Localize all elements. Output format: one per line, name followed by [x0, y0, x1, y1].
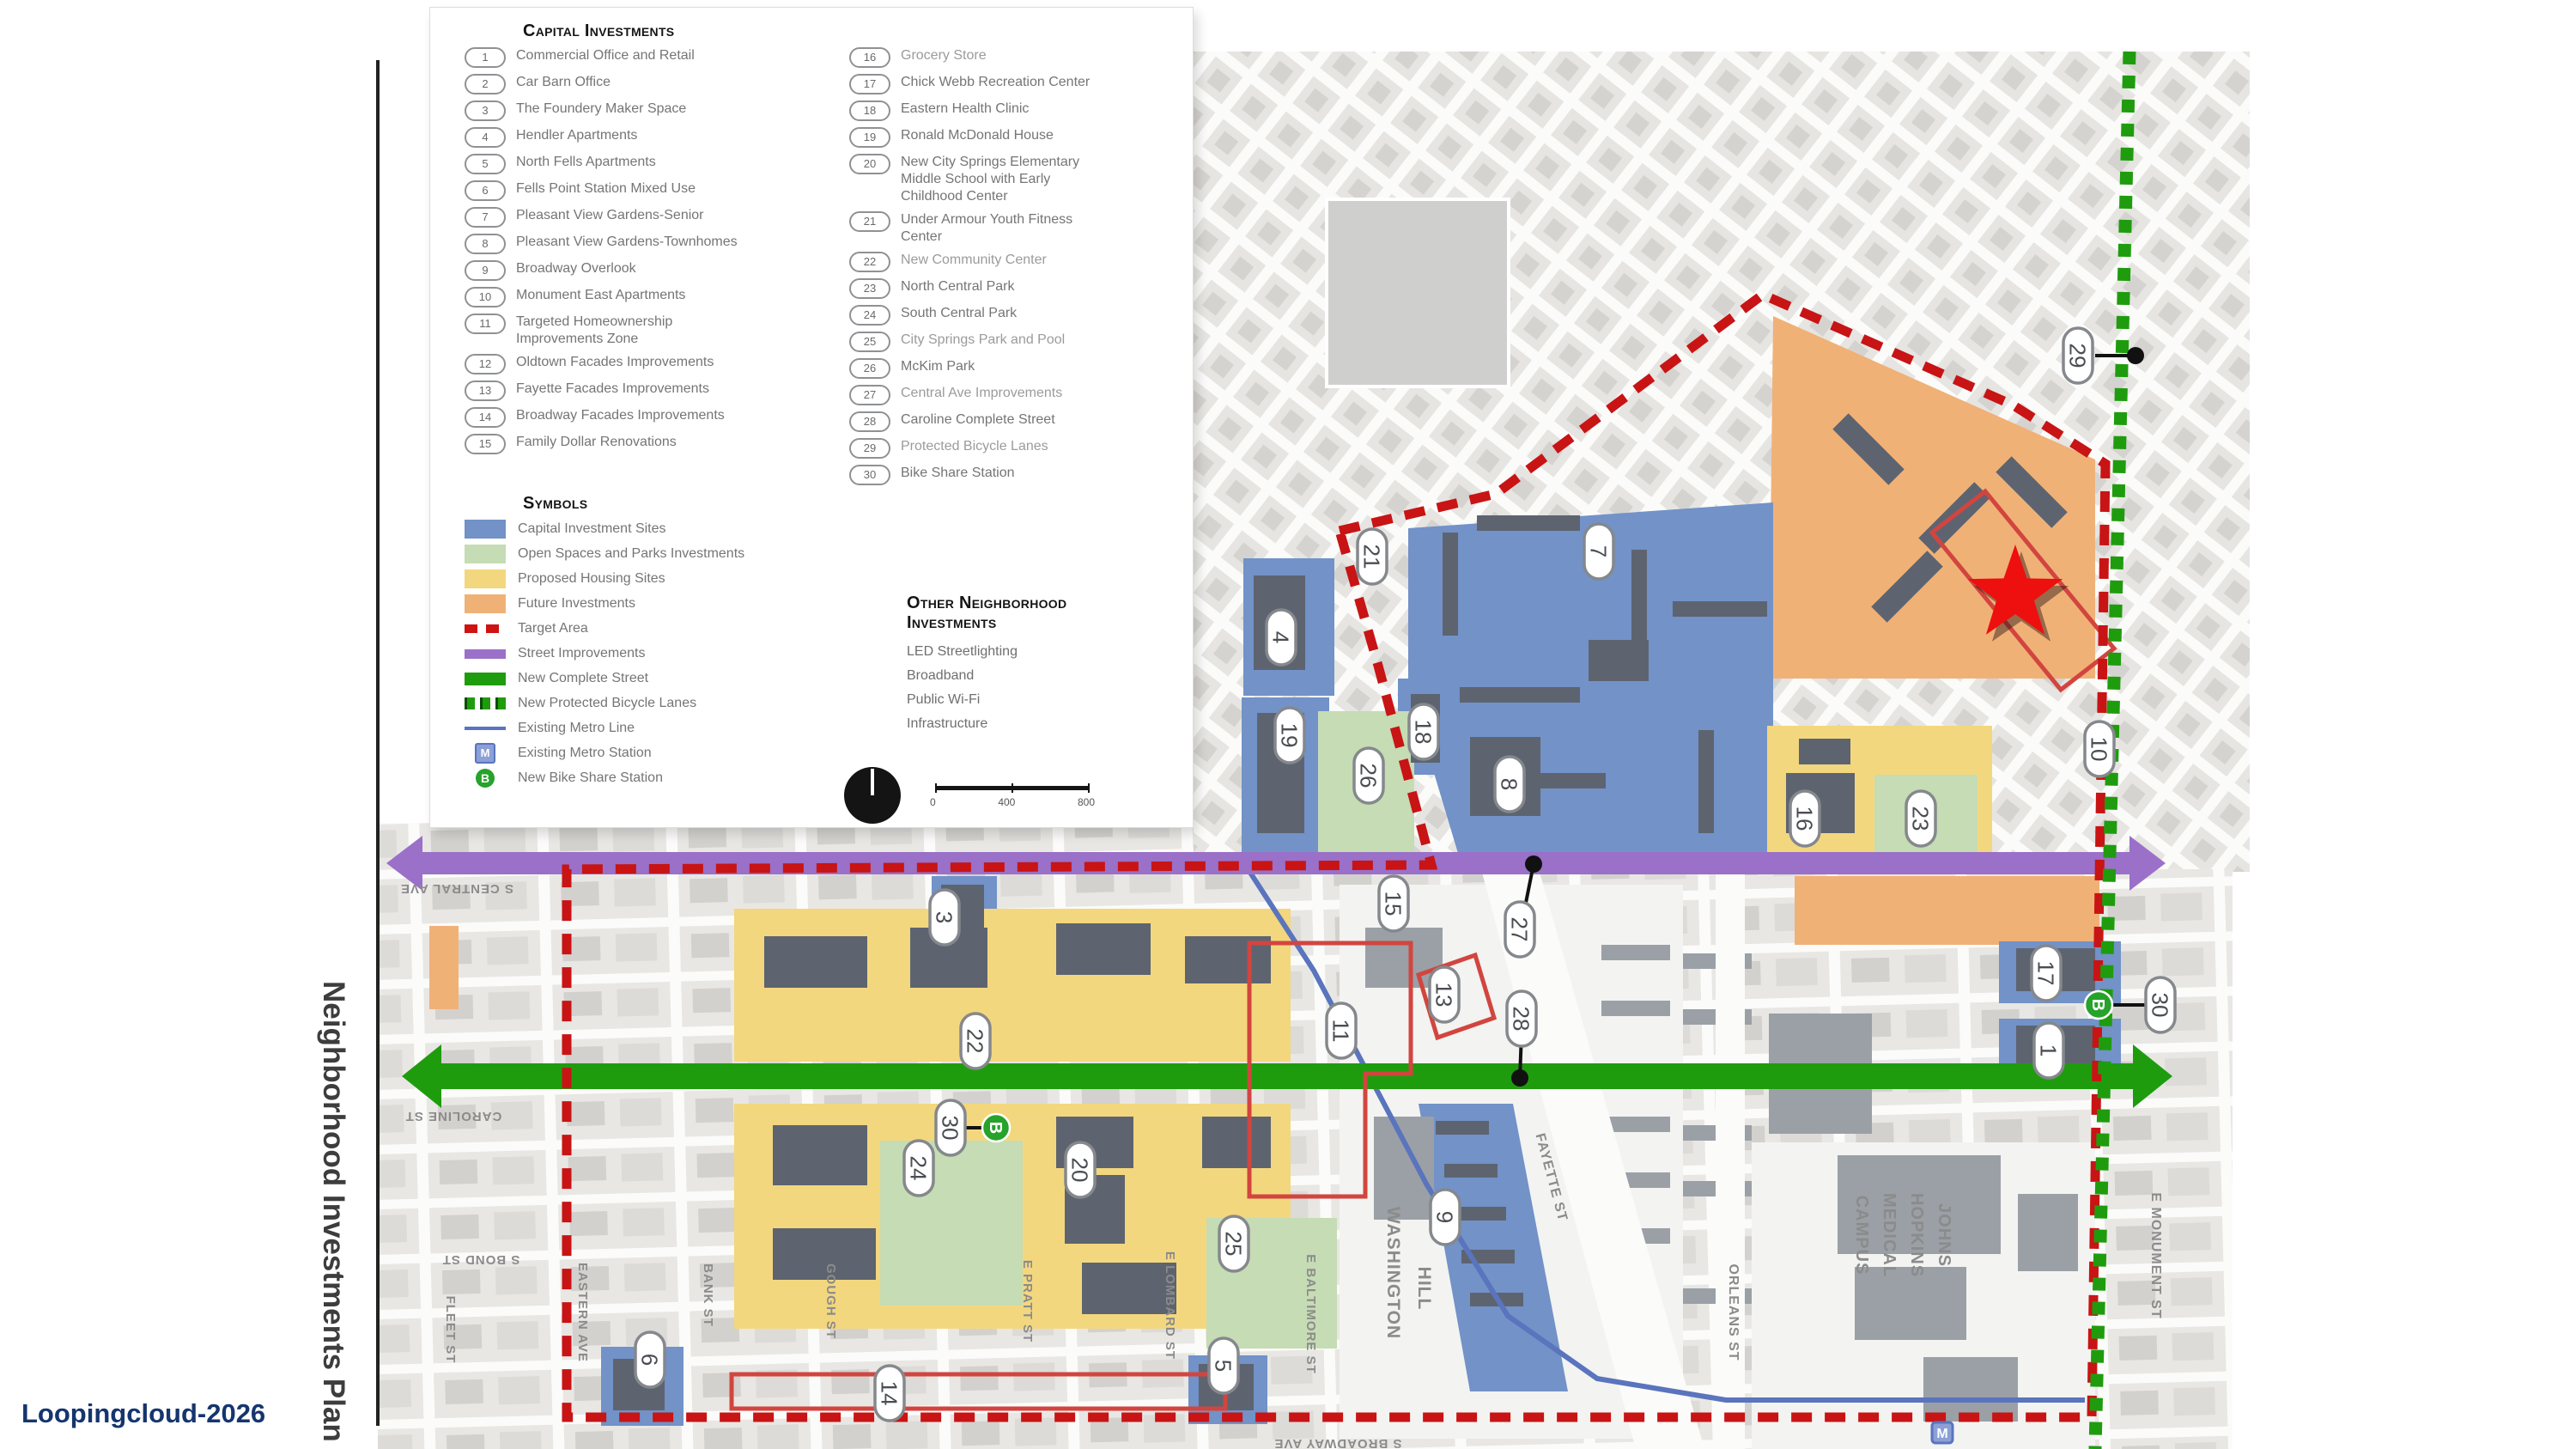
legend-item-27: 27Central Ave Improvements [849, 385, 1158, 405]
symbol-yellow: Proposed Housing Sites [465, 569, 842, 588]
future-investments-area [429, 926, 459, 1009]
metroline-swatch-icon [465, 727, 506, 730]
metro-station-marker: M [1932, 1422, 1953, 1443]
street-label: GOUGH ST [823, 1263, 838, 1339]
legend-item-number: 23 [849, 278, 890, 299]
legend-item-number: 3 [465, 100, 506, 121]
svg-text:M: M [1936, 1427, 1947, 1441]
map-badge-30: 30 [2146, 977, 2175, 1032]
legend-item-label: Oldtown Facades Improvements [516, 354, 714, 371]
svg-text:22: 22 [963, 1029, 988, 1054]
legend-item-label: Caroline Complete Street [901, 411, 1055, 429]
north-arrow-icon [844, 767, 901, 824]
legend-item-number: 16 [849, 47, 890, 68]
legend-item-number: 26 [849, 358, 890, 379]
legend-item-number: 25 [849, 332, 890, 352]
legend-item-25: 25City Springs Park and Pool [849, 332, 1158, 352]
green-swatch-icon [465, 545, 506, 563]
legend-item-number: 12 [465, 354, 506, 374]
other-investment-item: Infrastructure [907, 712, 1182, 736]
svg-text:5: 5 [1211, 1360, 1236, 1372]
symbol-label: Capital Investment Sites [518, 521, 666, 538]
svg-text:14: 14 [877, 1381, 902, 1406]
legend-item-number: 29 [849, 438, 890, 459]
map-badge-26: 26 [1354, 748, 1383, 803]
legend-item-26: 26McKim Park [849, 358, 1158, 379]
legend-item-label: Fayette Facades Improvements [516, 381, 709, 398]
legend-item-17: 17Chick Webb Recreation Center [849, 74, 1158, 94]
map-badge-15: 15 [1379, 876, 1408, 931]
map-badge-13: 13 [1430, 967, 1459, 1022]
symbol-label: Open Spaces and Parks Investments [518, 545, 744, 563]
legend-item-number: 22 [849, 252, 890, 272]
legend-item-4: 4Hendler Apartments [465, 127, 808, 148]
legend-item-number: 13 [465, 381, 506, 401]
legend-col-2: 16Grocery Store17Chick Webb Recreation C… [849, 47, 1158, 491]
svg-text:8: 8 [1497, 778, 1522, 790]
legend-item-24: 24South Central Park [849, 305, 1158, 326]
svg-text:30: 30 [938, 1116, 963, 1141]
street-label: E LOMBARD ST [1163, 1251, 1177, 1360]
legend-item-label: South Central Park [901, 305, 1017, 322]
legend-item-number: 1 [465, 47, 506, 68]
symbol-label: Target Area [518, 620, 588, 637]
street-label: EASTERN AVE [575, 1263, 590, 1362]
street-swatch-icon [465, 649, 506, 659]
legend-item-number: 5 [465, 154, 506, 174]
map-canvas: S CENTRAL AVECAROLINE STS BOND STFLEET S… [0, 0, 2576, 1449]
symbol-label: New Complete Street [518, 670, 648, 687]
map-badge-7: 7 [1584, 524, 1613, 579]
svg-text:20: 20 [1067, 1158, 1093, 1183]
svg-text:3: 3 [932, 911, 957, 923]
symbol-metroline: Existing Metro Line [465, 719, 842, 738]
legend-item-number: 17 [849, 74, 890, 94]
scale-labels: 0400800 [930, 796, 1095, 808]
legend-item-10: 10Monument East Apartments [465, 287, 808, 307]
legend-item-number: 9 [465, 260, 506, 281]
legend-item-label: Hendler Apartments [516, 127, 637, 144]
svg-text:23: 23 [1908, 807, 1934, 831]
map-badge-28: 28 [1507, 991, 1536, 1046]
street-label: JOHNS [1935, 1203, 1953, 1267]
symbol-label: Existing Metro Line [518, 720, 635, 737]
other-investments-title: Other Neighborhood Investments [907, 594, 1066, 633]
legend-item-label: The Foundery Maker Space [516, 100, 686, 118]
legend-item-29: 29Protected Bicycle Lanes [849, 438, 1158, 459]
legend-item-number: 21 [849, 211, 890, 232]
legend-item-label: Ronald McDonald House [901, 127, 1054, 144]
street-label: E PRATT ST [1020, 1260, 1035, 1342]
legend-item-11: 11Targeted Homeownership Improvements Zo… [465, 314, 808, 348]
large-gray-block [1327, 199, 1509, 387]
symbol-label: Proposed Housing Sites [518, 570, 665, 588]
map-badge-18: 18 [1409, 704, 1438, 759]
bikeshare-swatch-icon: B [465, 769, 506, 788]
street-label: CAMPUS [1852, 1196, 1871, 1275]
street-label: HOPKINS [1907, 1193, 1926, 1277]
page-title: Neighborhood Investments Plan [316, 981, 350, 1442]
map-badge-19: 19 [1275, 708, 1304, 763]
street-label: HILL [1414, 1267, 1434, 1311]
legend-item-label: North Central Park [901, 278, 1015, 295]
complete-swatch-icon [465, 673, 506, 685]
target-swatch-icon [465, 624, 506, 633]
map-badge-17: 17 [2032, 946, 2061, 1001]
symbol-label: Future Investments [518, 595, 635, 612]
svg-text:15: 15 [1381, 892, 1406, 916]
legend-item-28: 28Caroline Complete Street [849, 411, 1158, 432]
legend-item-5: 5North Fells Apartments [465, 154, 808, 174]
svg-text:21: 21 [1359, 545, 1385, 569]
svg-text:25: 25 [1221, 1232, 1247, 1257]
svg-text:B: B [986, 1122, 1005, 1134]
legend-item-21: 21Under Armour Youth Fitness Center [849, 211, 1158, 246]
legend-item-label: New Community Center [901, 252, 1047, 269]
svg-text:28: 28 [1509, 1007, 1534, 1032]
map-badge-6: 6 [635, 1332, 665, 1387]
scale-bar [935, 786, 1090, 790]
capital-investments-title: Capital Investments [523, 21, 674, 41]
legend-item-16: 16Grocery Store [849, 47, 1158, 68]
scale-tick-label: 400 [998, 796, 1015, 808]
other-investment-item: Broadband [907, 664, 1182, 688]
legend-item-number: 24 [849, 305, 890, 326]
svg-text:30: 30 [2148, 993, 2173, 1018]
legend-item-20: 20New City Springs Elementary Middle Sch… [849, 154, 1158, 205]
legend-item-label: Family Dollar Renovations [516, 434, 677, 451]
map-badge-9: 9 [1431, 1190, 1460, 1245]
legend-item-label: Commercial Office and Retail [516, 47, 695, 64]
legend-symbols: Capital Investment SitesOpen Spaces and … [465, 520, 842, 794]
symbol-label: New Bike Share Station [518, 770, 663, 787]
svg-text:6: 6 [637, 1354, 663, 1366]
svg-text:13: 13 [1431, 983, 1457, 1008]
map-badge-27: 27 [1505, 902, 1534, 957]
map-badge-30: 30 [936, 1100, 965, 1155]
svg-text:18: 18 [1411, 720, 1437, 745]
map-badge-1: 1 [2034, 1023, 2063, 1078]
legend-item-number: 28 [849, 411, 890, 432]
legend-item-label: Car Barn Office [516, 74, 611, 91]
legend-item-number: 10 [465, 287, 506, 307]
future-investments-area [1795, 876, 2099, 945]
symbol-bikelane: New Protected Bicycle Lanes [465, 694, 842, 713]
legend-item-13: 13Fayette Facades Improvements [465, 381, 808, 401]
legend-item-19: 19Ronald McDonald House [849, 127, 1158, 148]
symbol-metrostation: MExisting Metro Station [465, 744, 842, 763]
map-badge-11: 11 [1327, 1003, 1356, 1058]
legend-item-number: 14 [465, 407, 506, 428]
symbol-blue: Capital Investment Sites [465, 520, 842, 539]
svg-text:29: 29 [2065, 344, 2091, 368]
legend-item-3: 3The Foundery Maker Space [465, 100, 808, 121]
legend-item-label: McKim Park [901, 358, 975, 375]
svg-text:26: 26 [1356, 764, 1382, 788]
legend-item-label: Eastern Health Clinic [901, 100, 1029, 118]
map-badge-14: 14 [875, 1366, 904, 1421]
svg-text:1: 1 [2036, 1044, 2062, 1056]
symbol-green: Open Spaces and Parks Investments [465, 545, 842, 563]
svg-text:11: 11 [1328, 1020, 1354, 1043]
symbol-label: Existing Metro Station [518, 745, 652, 762]
legend-item-9: 9Broadway Overlook [465, 260, 808, 281]
street-label: E BALTIMORE ST [1303, 1254, 1318, 1374]
legend-item-14: 14Broadway Facades Improvements [465, 407, 808, 428]
blue-swatch-icon [465, 520, 506, 539]
street-label: ORLEANS ST [1726, 1263, 1741, 1361]
symbol-street: Street Improvements [465, 644, 842, 663]
svg-text:16: 16 [1792, 807, 1818, 831]
legend-item-number: 6 [465, 180, 506, 201]
svg-text:9: 9 [1432, 1211, 1458, 1223]
street-label: S CENTRAL AVE [400, 881, 513, 896]
orange-swatch-icon [465, 594, 506, 613]
legend-item-label: Central Ave Improvements [901, 385, 1062, 402]
legend-item-number: 20 [849, 154, 890, 174]
map-badge-4: 4 [1267, 610, 1296, 665]
legend-item-23: 23North Central Park [849, 278, 1158, 299]
street-label: CAROLINE ST [405, 1109, 502, 1123]
bike-share-icon: B [476, 769, 495, 788]
legend-item-7: 7Pleasant View Gardens-Senior [465, 207, 808, 228]
legend-item-label: Chick Webb Recreation Center [901, 74, 1090, 91]
legend-item-2: 2Car Barn Office [465, 74, 808, 94]
watermark: Loopingcloud-2026 [21, 1398, 265, 1429]
legend-col-1: 1Commercial Office and Retail2Car Barn O… [465, 47, 808, 460]
legend-item-1: 1Commercial Office and Retail [465, 47, 808, 68]
map-badge-16: 16 [1790, 791, 1820, 846]
legend-item-12: 12Oldtown Facades Improvements [465, 354, 808, 374]
svg-text:4: 4 [1268, 631, 1294, 643]
symbol-complete: New Complete Street [465, 669, 842, 688]
map-badge-22: 22 [961, 1014, 990, 1068]
legend-item-number: 30 [849, 465, 890, 485]
legend-item-label: Pleasant View Gardens-Senior [516, 207, 704, 224]
legend-other-items: LED StreetlightingBroadbandPublic Wi-FiI… [907, 640, 1182, 736]
symbol-label: Street Improvements [518, 645, 646, 662]
svg-text:B: B [2088, 999, 2107, 1011]
legend-item-label: Grocery Store [901, 47, 987, 64]
scale-tick-label: 0 [930, 796, 936, 808]
legend-item-label: City Springs Park and Pool [901, 332, 1065, 349]
legend-item-number: 27 [849, 385, 890, 405]
street-label: E MONUMENT ST [2148, 1192, 2163, 1318]
svg-text:24: 24 [906, 1156, 932, 1181]
symbols-title: Symbols [523, 494, 587, 514]
legend-item-number: 4 [465, 127, 506, 148]
map-badge-10: 10 [2085, 721, 2114, 776]
legend-item-30: 30Bike Share Station [849, 465, 1158, 485]
street-label: MEDICAL [1880, 1193, 1899, 1277]
symbol-label: New Protected Bicycle Lanes [518, 695, 696, 712]
map-badge-5: 5 [1209, 1338, 1238, 1393]
legend-item-number: 19 [849, 127, 890, 148]
street-label: BANK ST [701, 1263, 715, 1327]
legend-item-22: 22New Community Center [849, 252, 1158, 272]
legend-item-label: Monument East Apartments [516, 287, 685, 304]
legend-item-number: 18 [849, 100, 890, 121]
map-badge-24: 24 [904, 1141, 933, 1196]
legend-item-label: Fells Point Station Mixed Use [516, 180, 696, 198]
map-badge-3: 3 [930, 890, 959, 945]
bike-share-station-marker: B [2085, 991, 2112, 1019]
svg-text:17: 17 [2033, 961, 2059, 986]
scale-tick-label: 800 [1078, 796, 1095, 808]
legend-item-label: Bike Share Station [901, 465, 1015, 482]
map-badge-25: 25 [1219, 1216, 1249, 1271]
legend-item-6: 6Fells Point Station Mixed Use [465, 180, 808, 201]
legend-item-label: Targeted Homeownership Improvements Zone [516, 314, 672, 348]
symbol-orange: Future Investments [465, 594, 842, 613]
street-label: S BROADWAY AVE [1273, 1436, 1401, 1449]
legend-item-label: North Fells Apartments [516, 154, 656, 171]
other-investment-item: LED Streetlighting [907, 640, 1182, 664]
legend-item-label: Under Armour Youth Fitness Center [901, 211, 1072, 246]
legend-item-label: Broadway Overlook [516, 260, 636, 277]
yellow-swatch-icon [465, 569, 506, 588]
legend-item-number: 8 [465, 234, 506, 254]
other-investment-item: Public Wi-Fi [907, 688, 1182, 712]
map-badge-21: 21 [1358, 529, 1387, 584]
legend-item-15: 15Family Dollar Renovations [465, 434, 808, 454]
legend-item-number: 15 [465, 434, 506, 454]
svg-text:10: 10 [2087, 737, 2112, 762]
legend-item-label: Pleasant View Gardens-Townhomes [516, 234, 738, 251]
map-badge-20: 20 [1066, 1142, 1095, 1197]
park-south-central [880, 1141, 1023, 1306]
street-label: WASHINGTON [1383, 1207, 1403, 1339]
metrostation-swatch-icon: M [465, 744, 506, 763]
map-badge-29: 29 [2063, 328, 2093, 383]
svg-text:7: 7 [1586, 545, 1612, 557]
legend-item-number: 7 [465, 207, 506, 228]
metro-station-icon: M [475, 743, 495, 764]
street-label: S BOND ST [442, 1252, 520, 1267]
svg-text:19: 19 [1277, 723, 1303, 748]
legend-item-label: Broadway Facades Improvements [516, 407, 725, 424]
bike-share-station-marker: B [982, 1114, 1010, 1142]
map-badge-23: 23 [1906, 791, 1935, 846]
legend-item-number: 2 [465, 74, 506, 94]
svg-text:27: 27 [1507, 917, 1533, 942]
symbol-bikeshare: BNew Bike Share Station [465, 769, 842, 788]
map-badge-8: 8 [1495, 757, 1524, 812]
legend-item-number: 11 [465, 314, 506, 334]
legend-panel: Capital Investments 1Commercial Office a… [429, 7, 1194, 828]
street-label: FLEET ST [443, 1296, 458, 1364]
bikelane-swatch-icon [465, 697, 506, 709]
legend-item-label: Protected Bicycle Lanes [901, 438, 1048, 455]
legend-item-label: New City Springs Elementary Middle Schoo… [901, 154, 1079, 205]
legend-item-18: 18Eastern Health Clinic [849, 100, 1158, 121]
symbol-target: Target Area [465, 619, 842, 638]
legend-item-8: 8Pleasant View Gardens-Townhomes [465, 234, 808, 254]
